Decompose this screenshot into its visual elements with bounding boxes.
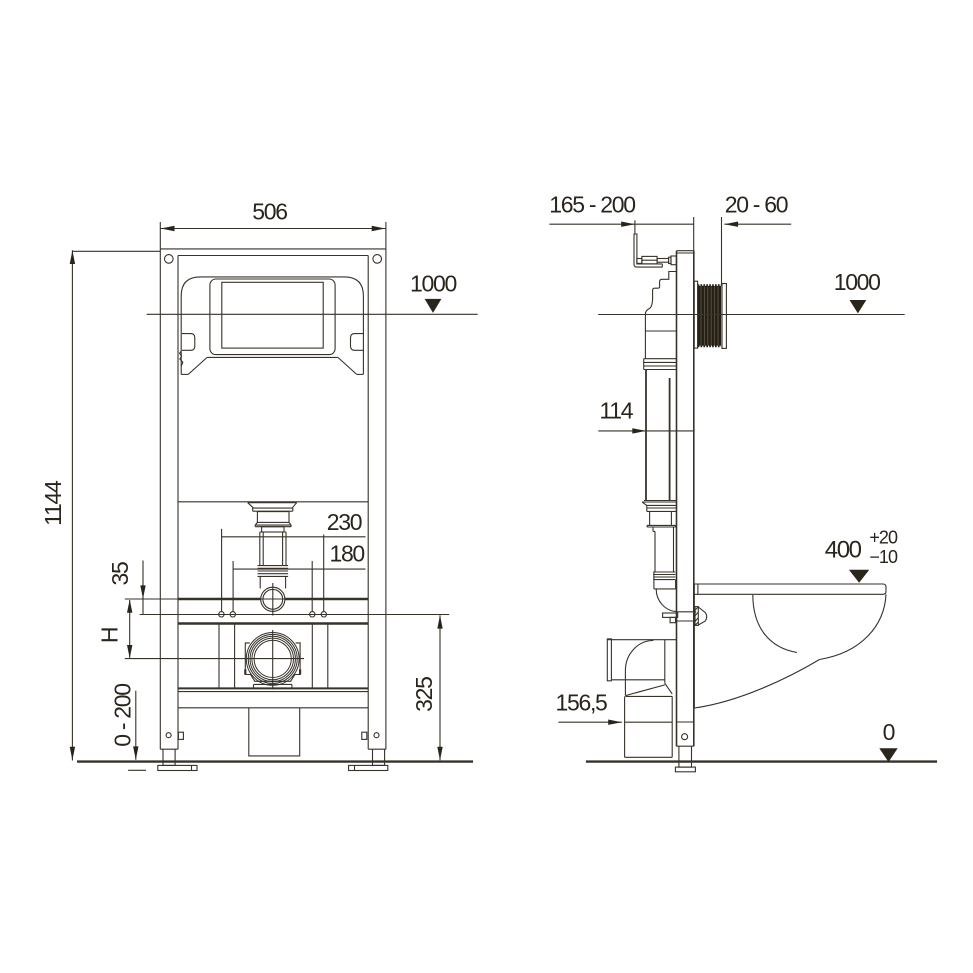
svg-text:156,5: 156,5 xyxy=(555,690,607,716)
svg-text:0: 0 xyxy=(883,719,895,745)
svg-text:165 - 200: 165 - 200 xyxy=(549,192,635,218)
svg-text:1000: 1000 xyxy=(834,269,880,295)
svg-text:325: 325 xyxy=(411,677,437,712)
svg-text:180: 180 xyxy=(329,541,364,567)
svg-text:35: 35 xyxy=(107,562,133,585)
svg-text:230: 230 xyxy=(327,509,362,535)
svg-text:20 - 60: 20 - 60 xyxy=(725,192,788,218)
svg-text:114: 114 xyxy=(600,398,634,424)
svg-text:H: H xyxy=(97,628,123,643)
svg-text:−10: −10 xyxy=(869,547,898,567)
svg-text:400: 400 xyxy=(825,536,862,563)
svg-text:+20: +20 xyxy=(869,527,898,547)
svg-text:1000: 1000 xyxy=(410,271,456,297)
svg-text:1144: 1144 xyxy=(40,480,66,526)
svg-text:0 - 200: 0 - 200 xyxy=(110,684,136,747)
svg-text:506: 506 xyxy=(252,199,287,225)
